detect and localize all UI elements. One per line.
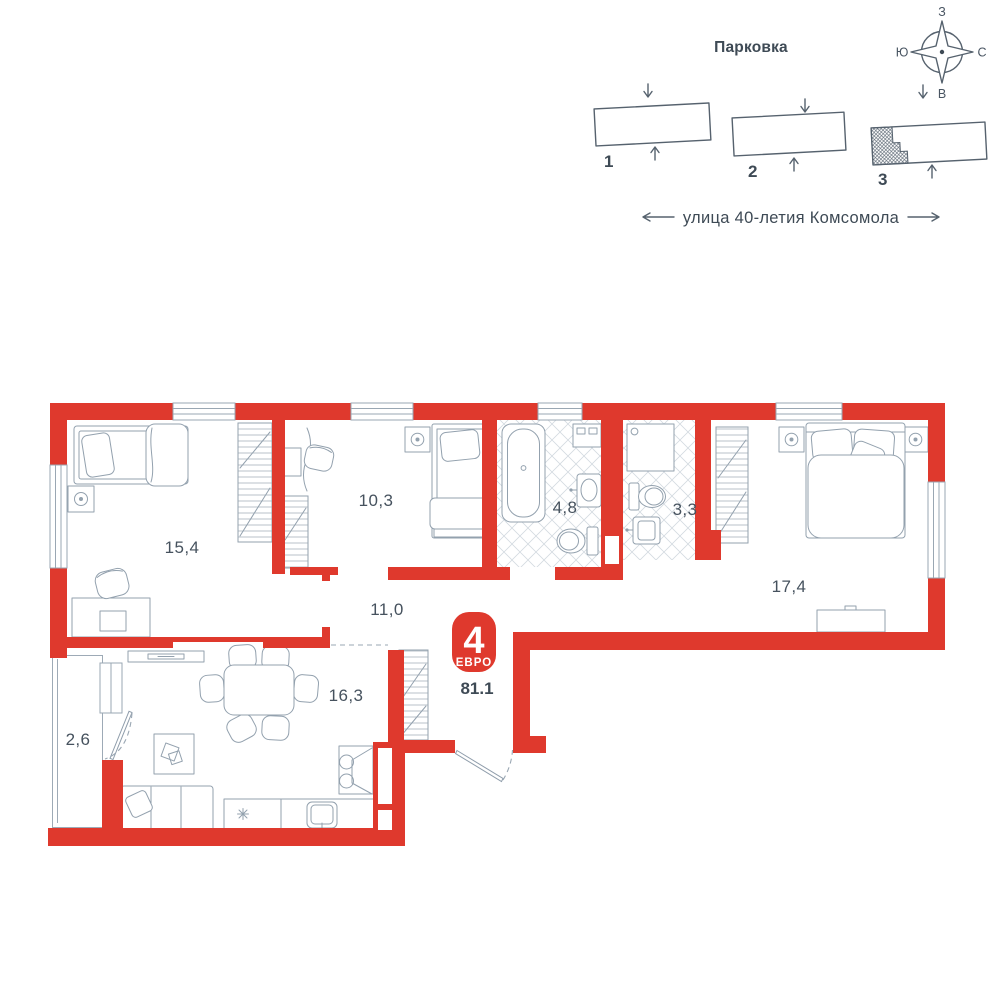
compass-south: Ю bbox=[896, 46, 909, 60]
building-2-entry-arrow-bottom bbox=[790, 158, 798, 171]
toilet bbox=[557, 527, 598, 555]
area-label-wc: 3,3 bbox=[673, 500, 698, 519]
chair bbox=[199, 674, 225, 703]
street-row: улица 40-летия Комсомола bbox=[643, 209, 939, 227]
area-label-bedroom-2: 10,3 bbox=[359, 491, 394, 510]
window bbox=[50, 465, 67, 568]
floor-plan-canvas: Парковка З Ю С В 1 2 bbox=[0, 0, 1000, 1000]
kitchen-sink bbox=[307, 802, 337, 831]
area-label-bedroom-3: 17,4 bbox=[772, 577, 807, 596]
building-2: 2 bbox=[732, 99, 846, 181]
street-arrow-right-icon bbox=[908, 213, 939, 221]
building-3-entry-arrow-top bbox=[919, 85, 927, 98]
building-3-number: 3 bbox=[878, 170, 887, 189]
sofa bbox=[121, 786, 213, 831]
window bbox=[538, 403, 582, 420]
ceiling-lamp-icon bbox=[903, 427, 928, 452]
street-label: улица 40-летия Комсомола bbox=[683, 209, 900, 227]
building-3-current: 3 bbox=[871, 85, 987, 189]
stove-burner-icon bbox=[238, 809, 249, 820]
building-2-entry-arrow-top bbox=[801, 99, 809, 112]
ceiling-lamp-icon bbox=[68, 486, 94, 512]
entry-door bbox=[456, 750, 513, 782]
area-label-balcony: 2,6 bbox=[66, 730, 91, 749]
desk-2 bbox=[284, 448, 301, 476]
pillow bbox=[81, 432, 115, 478]
ceiling-lamp-icon bbox=[779, 427, 804, 452]
blanket bbox=[430, 498, 489, 529]
stove-unit bbox=[339, 746, 373, 794]
building-3-entry-arrow-bottom bbox=[928, 165, 936, 178]
compass-west: З bbox=[938, 5, 946, 19]
chair bbox=[293, 674, 319, 703]
building-1-number: 1 bbox=[604, 152, 613, 171]
building-1: 1 bbox=[594, 84, 711, 171]
bedroom-1-furniture bbox=[68, 424, 188, 637]
floor-plan-page: Парковка З Ю С В 1 2 bbox=[0, 0, 1000, 1000]
area-label-bathroom: 4,8 bbox=[553, 498, 578, 517]
site-plan: Парковка З Ю С В 1 2 bbox=[594, 5, 987, 227]
area-label-kitchen-living: 16,3 bbox=[329, 686, 364, 705]
kitchen-living-furniture bbox=[121, 644, 374, 831]
ceiling-lamp-icon bbox=[405, 427, 430, 452]
wardrobe-bedroom-1 bbox=[238, 423, 272, 542]
badge-rooms-count: 4 bbox=[463, 620, 484, 662]
window bbox=[928, 482, 945, 578]
street-arrow-left-icon bbox=[643, 213, 674, 221]
area-label-hallway: 11,0 bbox=[370, 600, 403, 619]
shower bbox=[627, 424, 674, 471]
parking-label: Парковка bbox=[714, 39, 788, 56]
coffee-table bbox=[154, 734, 194, 774]
bath-shelf bbox=[573, 424, 601, 447]
wardrobe-bedroom-2 bbox=[283, 496, 308, 568]
kitchen-counter bbox=[224, 799, 374, 831]
badge-layout-type: ЕВРО bbox=[456, 657, 492, 669]
window bbox=[173, 403, 235, 420]
compass-rose-icon: З Ю С В bbox=[896, 5, 987, 101]
dresser bbox=[817, 610, 885, 632]
window bbox=[351, 403, 413, 420]
apartment-badge: 4 ЕВРО 81.1 bbox=[452, 612, 496, 698]
badge-total-area: 81.1 bbox=[460, 679, 493, 698]
bedroom-3-furniture bbox=[779, 423, 928, 632]
pillow bbox=[440, 429, 481, 462]
window bbox=[776, 403, 842, 420]
doors bbox=[105, 645, 513, 782]
building-2-number: 2 bbox=[748, 162, 757, 181]
area-label-bedroom-1: 15,4 bbox=[165, 538, 200, 557]
balcony-door bbox=[105, 711, 132, 759]
compass-north: С bbox=[977, 46, 986, 60]
desk-chair bbox=[93, 567, 131, 601]
blanket bbox=[808, 455, 904, 538]
building-1-entry-arrow-bottom bbox=[651, 147, 659, 160]
chair bbox=[224, 711, 259, 745]
compass-east: В bbox=[938, 87, 946, 101]
wardrobe-bedroom-3 bbox=[716, 427, 748, 543]
bedroom-2-furniture bbox=[284, 424, 489, 538]
apartment-plan: 15,4 10,3 4,8 3,3 17,4 11,0 16,3 2,6 4 Е… bbox=[48, 403, 945, 846]
chair bbox=[261, 715, 289, 740]
footboard bbox=[434, 529, 486, 537]
building-1-entry-arrow-top bbox=[644, 84, 652, 97]
tv-unit bbox=[128, 651, 204, 662]
dining-table bbox=[199, 644, 319, 745]
